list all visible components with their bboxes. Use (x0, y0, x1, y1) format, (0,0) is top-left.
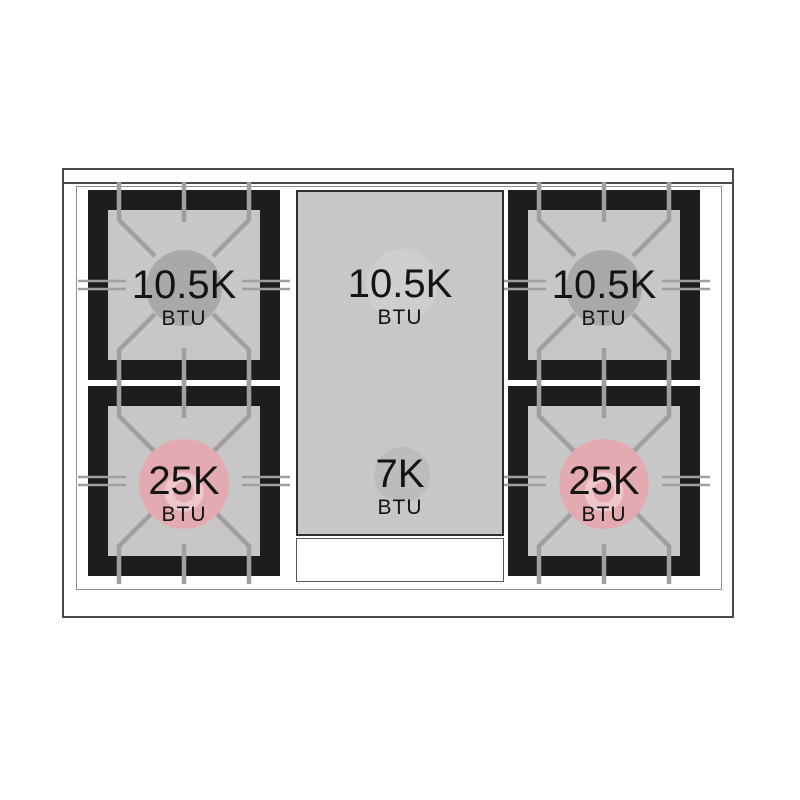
burner-top-right: 10.5K BTU (508, 190, 700, 380)
cooktop-surface: 10.5K BTU 25K BTU (76, 186, 722, 590)
btu-unit: BTU (508, 306, 700, 331)
btu-unit: BTU (508, 502, 700, 527)
btu-label: 10.5K BTU (508, 264, 700, 331)
stove-back-trim (62, 168, 734, 184)
btu-unit: BTU (298, 305, 502, 330)
btu-unit: BTU (88, 502, 280, 527)
btu-value: 25K (88, 460, 280, 502)
btu-value: 10.5K (298, 263, 502, 305)
burner-bottom-right: 25K BTU (508, 386, 700, 576)
burner-top-left: 10.5K BTU (88, 190, 280, 380)
btu-value: 10.5K (508, 264, 700, 306)
cooktop-diagram: 10.5K BTU 25K BTU (0, 0, 800, 800)
btu-label: 7K BTU (298, 453, 502, 520)
griddle-front-panel (296, 538, 504, 582)
btu-label: 25K BTU (508, 460, 700, 527)
btu-unit: BTU (298, 495, 502, 520)
btu-label: 25K BTU (88, 460, 280, 527)
btu-value: 7K (298, 453, 502, 495)
btu-unit: BTU (88, 306, 280, 331)
btu-label: 10.5K BTU (298, 263, 502, 330)
griddle-plate: 10.5K BTU 7K BTU (296, 190, 504, 536)
btu-label: 10.5K BTU (88, 264, 280, 331)
btu-value: 10.5K (88, 264, 280, 306)
burner-bottom-left: 25K BTU (88, 386, 280, 576)
btu-value: 25K (508, 460, 700, 502)
